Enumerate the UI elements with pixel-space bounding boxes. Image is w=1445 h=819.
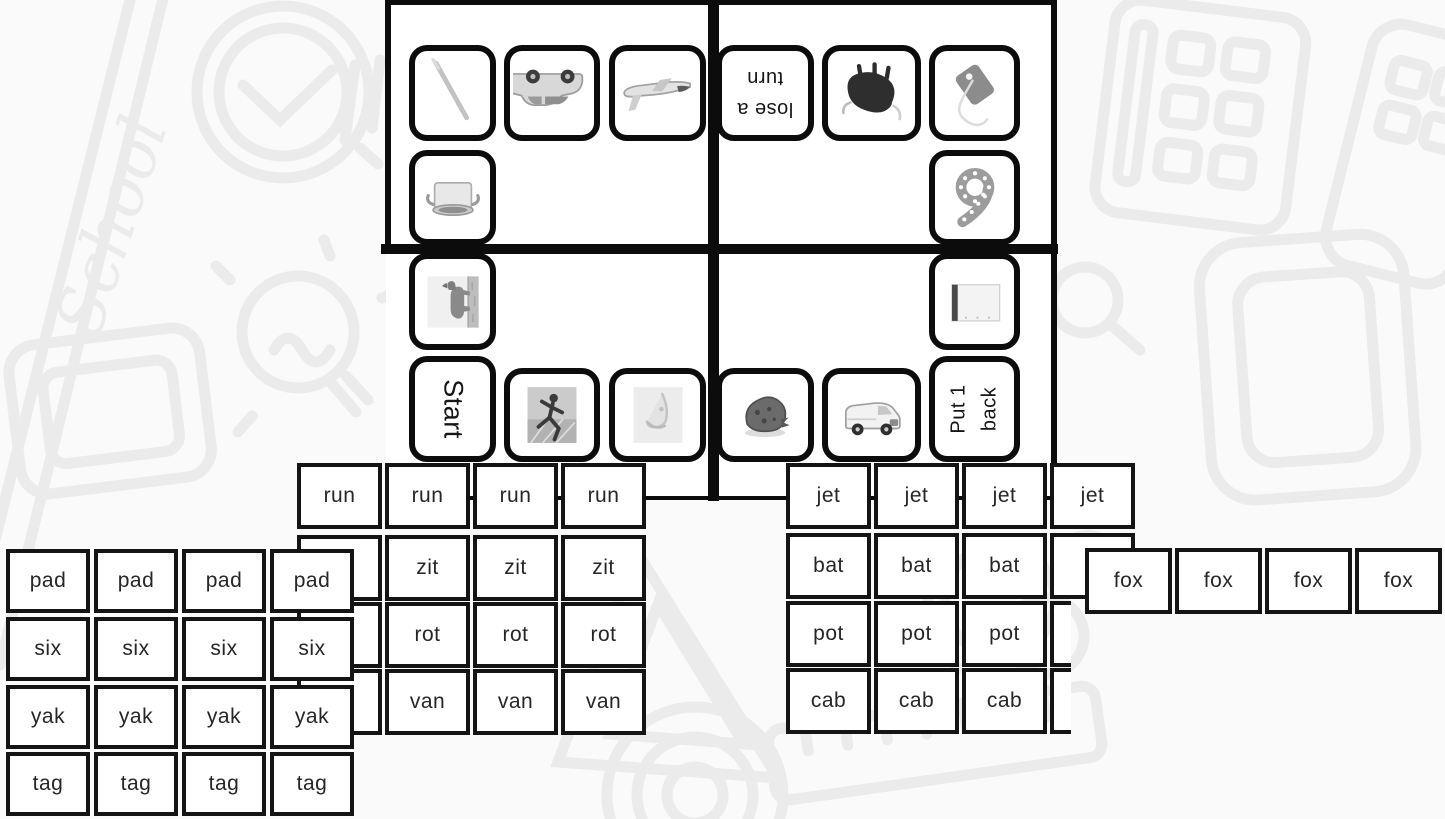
word-card[interactable]: fox — [1355, 548, 1442, 614]
word-card[interactable]: six — [270, 617, 354, 681]
tile-run[interactable] — [504, 368, 600, 462]
word-card[interactable]: fox — [1265, 548, 1352, 614]
upside-down-pot-image — [417, 159, 489, 237]
word-card[interactable]: pad — [94, 549, 178, 613]
tile-van[interactable] — [822, 368, 921, 462]
notepad-image — [938, 262, 1012, 342]
word-card[interactable]: jet — [786, 463, 871, 529]
word-card[interactable]: fox — [1175, 548, 1262, 614]
word-card[interactable]: run — [473, 463, 558, 529]
upside-down-yak-image — [832, 54, 912, 132]
word-card[interactable]: rot — [561, 602, 646, 668]
cut-word-card — [1050, 668, 1071, 734]
start-label: Start — [406, 372, 500, 447]
stopwatch-doodle — [197, 0, 378, 178]
word-card[interactable]: yak — [182, 685, 266, 749]
rotten-fruit-image — [725, 377, 805, 453]
lightbulb-doodle — [216, 240, 398, 432]
pot-cards-row: pot pot pot — [786, 601, 1071, 667]
bat-cards-row: bat bat bat — [786, 533, 1135, 599]
word-card[interactable]: yak — [6, 685, 90, 749]
phonics-board-game-page: School — [0, 0, 1445, 819]
word-card[interactable]: bat — [962, 533, 1047, 599]
magnifier-doodle — [1052, 267, 1140, 350]
word-card[interactable]: zit — [385, 535, 470, 601]
pad-cards-row: pad pad pad pad — [6, 549, 354, 613]
tile-pot[interactable] — [409, 150, 496, 245]
tile-zit[interactable] — [609, 368, 706, 462]
nose-with-zit-image — [618, 377, 698, 453]
school-script-doodle: School — [40, 107, 183, 345]
upside-down-marquee-six-image — [938, 159, 1012, 237]
tile-tag[interactable] — [929, 45, 1020, 141]
word-card[interactable]: fox — [1085, 548, 1172, 614]
word-card[interactable]: pad — [6, 549, 90, 613]
word-card[interactable]: zit — [473, 535, 558, 601]
word-card[interactable]: six — [94, 617, 178, 681]
word-card[interactable]: cab — [786, 668, 871, 734]
upside-down-car-image — [513, 54, 591, 132]
word-card[interactable]: rot — [385, 602, 470, 668]
tile-six[interactable] — [929, 150, 1020, 245]
word-card[interactable]: rot — [473, 602, 558, 668]
word-card[interactable]: tag — [6, 752, 90, 816]
word-card[interactable]: yak — [270, 685, 354, 749]
tile-pad[interactable] — [929, 253, 1020, 350]
tile-put-1-back[interactable]: Put 1 back — [929, 356, 1020, 462]
run-cards-row: run run run run — [297, 463, 646, 529]
word-card[interactable]: run — [385, 463, 470, 529]
six-cards-row: six six six six — [6, 617, 354, 681]
runner-photo-image — [513, 377, 591, 453]
tile-rot[interactable] — [716, 368, 814, 462]
calculator-doodle — [1092, 0, 1309, 233]
word-card[interactable]: jet — [962, 463, 1047, 529]
tile-bat[interactable] — [409, 45, 496, 141]
word-card[interactable]: pot — [962, 601, 1047, 667]
tile-lose-a-turn[interactable]: lose a turn — [716, 45, 814, 141]
word-card[interactable]: six — [182, 617, 266, 681]
word-card[interactable]: yak — [94, 685, 178, 749]
board-border-top — [386, 0, 1056, 5]
tile-cab[interactable] — [504, 45, 600, 141]
word-card[interactable]: bat — [786, 533, 871, 599]
word-card[interactable]: run — [561, 463, 646, 529]
word-card[interactable]: cab — [874, 668, 959, 734]
lose-a-turn-label: lose a turn — [722, 51, 808, 135]
sideways-fox-image — [417, 262, 489, 342]
fox-cards-row: fox fox fox fox — [1085, 548, 1442, 614]
word-card[interactable]: jet — [874, 463, 959, 529]
tile-yak[interactable] — [822, 45, 921, 141]
word-card[interactable]: van — [561, 669, 646, 735]
upside-down-jet-image — [618, 54, 698, 132]
word-card[interactable]: pot — [874, 601, 959, 667]
phone-doodle — [1319, 18, 1445, 291]
word-card[interactable]: tag — [270, 752, 354, 816]
cab-cards-row: cab cab cab — [786, 668, 1071, 734]
word-card[interactable]: van — [385, 669, 470, 735]
word-card[interactable]: tag — [182, 752, 266, 816]
word-card[interactable]: tag — [94, 752, 178, 816]
word-card[interactable]: cab — [962, 668, 1047, 734]
word-card[interactable]: jet — [1050, 463, 1135, 529]
white-van-image — [831, 377, 913, 453]
word-card[interactable]: van — [473, 669, 558, 735]
tile-fox[interactable] — [409, 253, 496, 350]
baseball-bat-image — [417, 54, 489, 132]
put-1-back-label: Put 1 back — [928, 370, 1022, 449]
board-border-left — [385, 0, 391, 254]
word-card[interactable]: bat — [874, 533, 959, 599]
tile-start[interactable]: Start — [409, 356, 496, 462]
word-card[interactable]: six — [6, 617, 90, 681]
cut-word-card — [1050, 601, 1071, 667]
tag-cards-row: tag tag tag tag — [6, 752, 354, 816]
tile-jet[interactable] — [609, 45, 706, 141]
word-card[interactable]: pot — [786, 601, 871, 667]
word-card[interactable]: pad — [182, 549, 266, 613]
word-card[interactable]: run — [297, 463, 382, 529]
jet-cards-row: jet jet jet jet — [786, 463, 1135, 529]
word-card[interactable]: zit — [561, 535, 646, 601]
gift-tag-image — [938, 54, 1012, 132]
yak-cards-row: yak yak yak yak — [6, 685, 354, 749]
word-card[interactable]: pad — [270, 549, 354, 613]
